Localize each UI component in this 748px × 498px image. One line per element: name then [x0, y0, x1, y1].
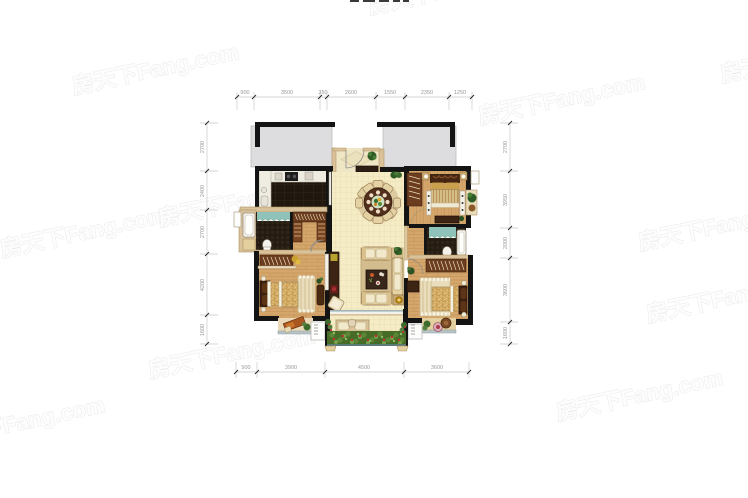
svg-text:2700: 2700: [200, 141, 206, 153]
svg-text:1600: 1600: [503, 327, 509, 339]
svg-text:2400: 2400: [200, 185, 206, 197]
svg-text:2700: 2700: [200, 226, 206, 238]
svg-text:350: 350: [318, 90, 327, 96]
svg-text:4200: 4200: [200, 279, 206, 291]
svg-text:900: 900: [241, 365, 250, 371]
svg-text:2600: 2600: [345, 90, 357, 96]
svg-text:3600: 3600: [431, 365, 443, 371]
svg-text:3600: 3600: [503, 284, 509, 296]
svg-text:3500: 3500: [281, 90, 293, 96]
svg-text:1550: 1550: [384, 90, 396, 96]
svg-text:1600: 1600: [200, 324, 206, 336]
svg-text:3900: 3900: [285, 365, 297, 371]
svg-text:3950: 3950: [503, 194, 509, 206]
svg-text:2350: 2350: [421, 90, 433, 96]
svg-text:900: 900: [240, 90, 249, 96]
svg-text:2000: 2000: [503, 237, 509, 249]
svg-text:4500: 4500: [358, 365, 370, 371]
svg-text:1250: 1250: [454, 90, 466, 96]
svg-text:2700: 2700: [503, 141, 509, 153]
